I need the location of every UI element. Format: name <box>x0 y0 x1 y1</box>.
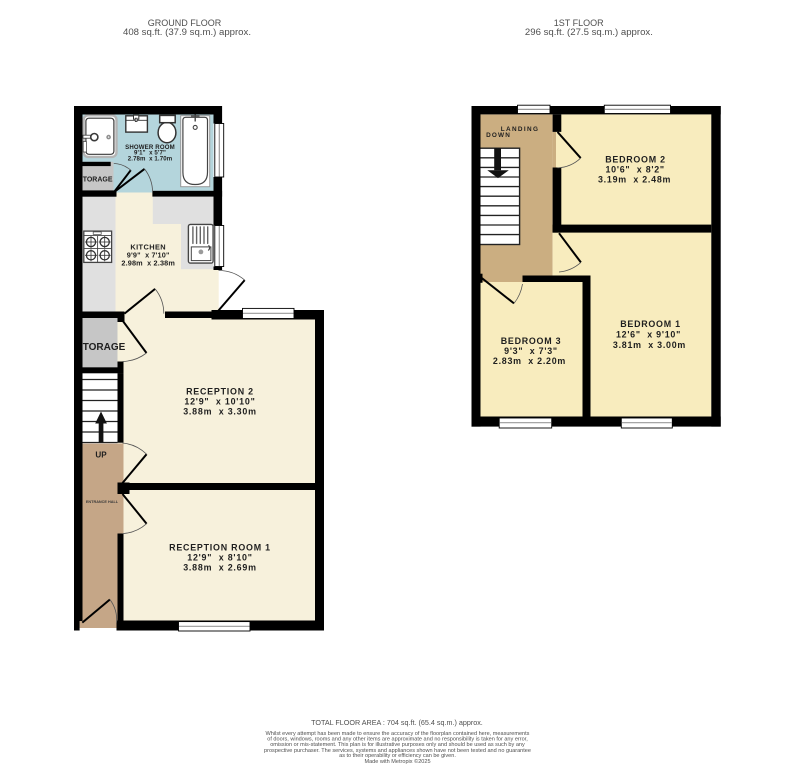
svg-text:BEDROOM 3: BEDROOM 3 <box>501 336 562 346</box>
svg-text:DOWN: DOWN <box>486 132 511 139</box>
svg-text:296 sq.ft. (27.5 sq.m.) approx: 296 sq.ft. (27.5 sq.m.) approx. <box>525 27 653 38</box>
svg-text:TORAGE: TORAGE <box>83 342 126 353</box>
svg-text:2.98m x 2.38m: 2.98m x 2.38m <box>121 258 175 267</box>
svg-text:3.19m x 2.48m: 3.19m x 2.48m <box>598 175 671 185</box>
svg-text:TOTAL FLOOR AREA : 704 sq.ft.: TOTAL FLOOR AREA : 704 sq.ft. (65.4 sq.m… <box>311 718 483 727</box>
svg-text:BEDROOM 1: BEDROOM 1 <box>620 319 681 329</box>
svg-text:12'6" x 9'10": 12'6" x 9'10" <box>616 330 681 340</box>
svg-text:ENTRANCE HALL: ENTRANCE HALL <box>86 500 119 504</box>
svg-text:9'3" x 7'3": 9'3" x 7'3" <box>504 346 558 356</box>
svg-text:TORAGE: TORAGE <box>83 176 113 183</box>
svg-text:408 sq.ft. (37.9 sq.m.) approx: 408 sq.ft. (37.9 sq.m.) approx. <box>123 27 251 38</box>
svg-text:10'6" x 8'2": 10'6" x 8'2" <box>605 165 664 175</box>
svg-text:12'9" x 8'10": 12'9" x 8'10" <box>187 552 253 562</box>
svg-text:12'9" x 10'10": 12'9" x 10'10" <box>184 397 255 407</box>
svg-text:RECEPTION ROOM 1: RECEPTION ROOM 1 <box>169 542 271 552</box>
svg-text:Made with Metropix ©2025: Made with Metropix ©2025 <box>364 758 430 765</box>
svg-text:2.78m x 1.70m: 2.78m x 1.70m <box>128 156 173 163</box>
svg-text:3.81m x 3.00m: 3.81m x 3.00m <box>613 340 686 350</box>
svg-text:3.88m x 3.30m: 3.88m x 3.30m <box>183 407 257 417</box>
svg-text:2.83m x 2.20m: 2.83m x 2.20m <box>493 356 566 366</box>
svg-text:BEDROOM 2: BEDROOM 2 <box>605 154 666 164</box>
svg-text:3.88m x 2.69m: 3.88m x 2.69m <box>183 563 257 573</box>
svg-text:RECEPTION 2: RECEPTION 2 <box>186 386 254 396</box>
svg-text:UP: UP <box>95 451 107 460</box>
